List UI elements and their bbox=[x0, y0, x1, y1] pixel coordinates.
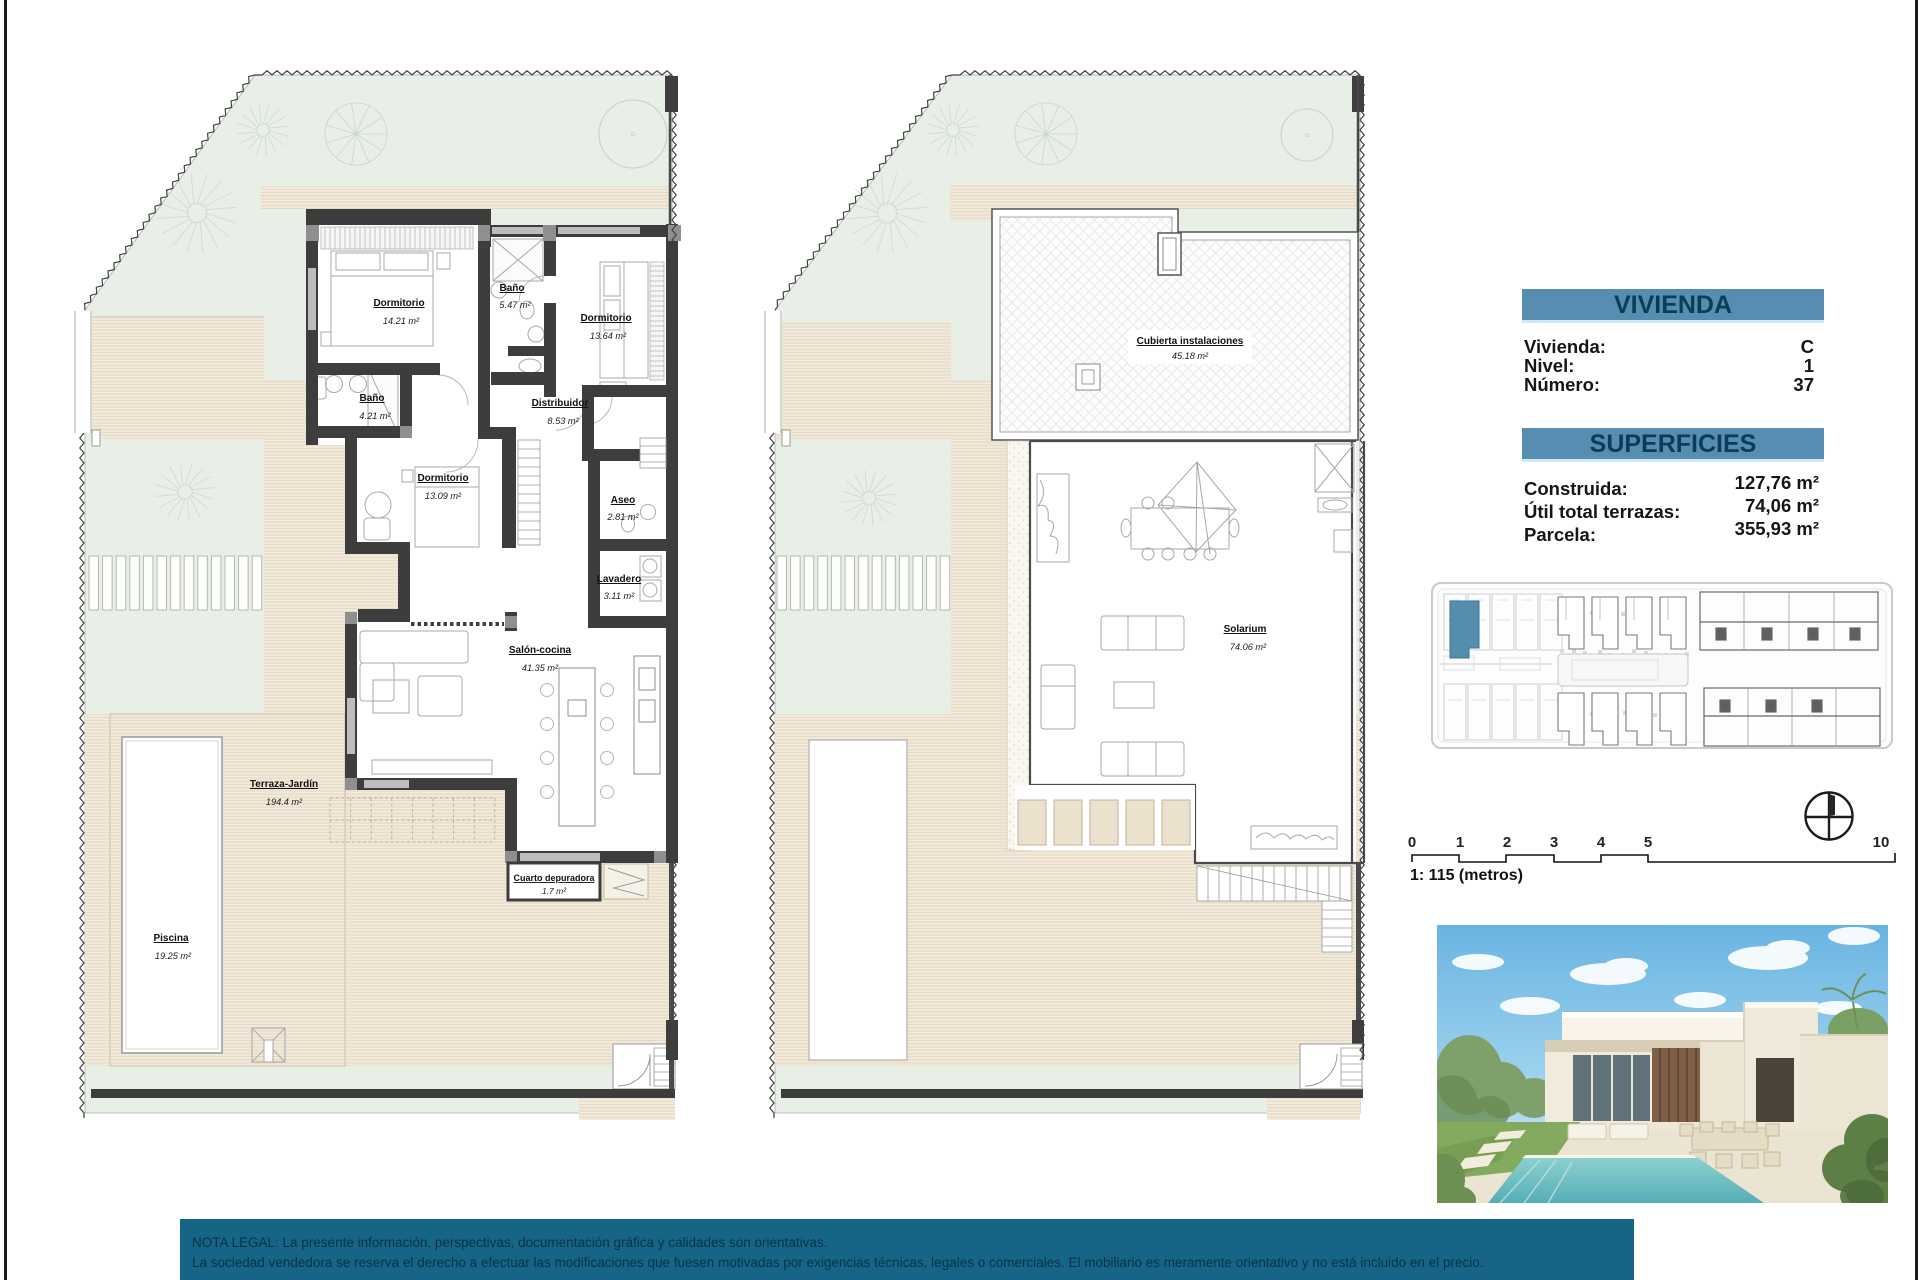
svg-text:2: 2 bbox=[1503, 834, 1511, 851]
svg-text:41.35 m²: 41.35 m² bbox=[522, 663, 559, 673]
svg-text:45.18 m²: 45.18 m² bbox=[1172, 351, 1209, 361]
svg-text:Parcela:: Parcela: bbox=[1524, 524, 1596, 545]
svg-text:74,06 m²: 74,06 m² bbox=[1745, 495, 1819, 516]
svg-text:1: 1 bbox=[1804, 355, 1814, 376]
svg-text:Nivel:: Nivel: bbox=[1524, 355, 1574, 376]
svg-text:13.64 m²: 13.64 m² bbox=[590, 331, 627, 341]
svg-text:13.09 m²: 13.09 m² bbox=[425, 491, 462, 501]
svg-text:4: 4 bbox=[1597, 834, 1606, 851]
svg-text:3.11 m²: 3.11 m² bbox=[604, 591, 635, 601]
svg-text:10: 10 bbox=[1873, 834, 1890, 851]
svg-text:Dormitorio: Dormitorio bbox=[580, 313, 631, 324]
svg-text:3: 3 bbox=[1550, 834, 1558, 851]
svg-text:Piscina: Piscina bbox=[153, 933, 188, 944]
svg-text:Número:: Número: bbox=[1524, 374, 1600, 395]
svg-text:1: 1 bbox=[1456, 834, 1464, 851]
svg-text:8.53 m²: 8.53 m² bbox=[547, 416, 579, 426]
svg-text:4.21 m²: 4.21 m² bbox=[359, 411, 391, 421]
svg-text:Útil total terrazas:: Útil total terrazas: bbox=[1524, 501, 1680, 522]
svg-text:Construida:: Construida: bbox=[1524, 478, 1628, 499]
svg-text:355,93 m²: 355,93 m² bbox=[1735, 518, 1819, 539]
svg-text:194.4 m²: 194.4 m² bbox=[266, 797, 303, 807]
svg-text:C: C bbox=[1801, 336, 1814, 357]
svg-text:La sociedad vendedora se reser: La sociedad vendedora se reserva el dere… bbox=[192, 1255, 1483, 1270]
svg-text:Dormitorio: Dormitorio bbox=[373, 298, 424, 309]
svg-text:5.47 m²: 5.47 m² bbox=[499, 300, 531, 310]
svg-text:SUPERFICIES: SUPERFICIES bbox=[1590, 430, 1757, 458]
svg-text:Aseo: Aseo bbox=[611, 495, 635, 506]
svg-text:Lavadero: Lavadero bbox=[597, 574, 641, 585]
svg-text:Cubierta instalaciones: Cubierta instalaciones bbox=[1137, 336, 1244, 347]
svg-text:74.06 m²: 74.06 m² bbox=[1230, 642, 1267, 652]
svg-text:1: 115 (metros): 1: 115 (metros) bbox=[1410, 867, 1523, 884]
svg-text:2.81 m²: 2.81 m² bbox=[606, 512, 639, 522]
svg-text:Distribuidor: Distribuidor bbox=[532, 398, 589, 409]
svg-text:Baño: Baño bbox=[500, 283, 525, 294]
svg-text:19.25 m²: 19.25 m² bbox=[155, 951, 192, 961]
svg-text:127,76 m²: 127,76 m² bbox=[1735, 472, 1819, 493]
svg-text:VIVIENDA: VIVIENDA bbox=[1614, 291, 1732, 319]
svg-text:NOTA LEGAL: La presente inform: NOTA LEGAL: La presente información, per… bbox=[192, 1235, 827, 1250]
svg-text:Salón-cocina: Salón-cocina bbox=[509, 645, 572, 656]
svg-text:Terraza-Jardín: Terraza-Jardín bbox=[250, 779, 318, 790]
svg-text:Baño: Baño bbox=[360, 393, 385, 404]
svg-text:Solarium: Solarium bbox=[1224, 624, 1267, 635]
svg-text:Dormitorio: Dormitorio bbox=[417, 473, 468, 484]
svg-text:5: 5 bbox=[1644, 834, 1652, 851]
svg-text:0: 0 bbox=[1408, 834, 1416, 851]
svg-text:37: 37 bbox=[1793, 374, 1814, 395]
svg-text:1.7 m²: 1.7 m² bbox=[542, 886, 567, 896]
svg-text:14.21 m²: 14.21 m² bbox=[383, 316, 420, 326]
svg-text:Cuarto depuradora: Cuarto depuradora bbox=[513, 873, 595, 883]
svg-text:Vivienda:: Vivienda: bbox=[1524, 336, 1606, 357]
